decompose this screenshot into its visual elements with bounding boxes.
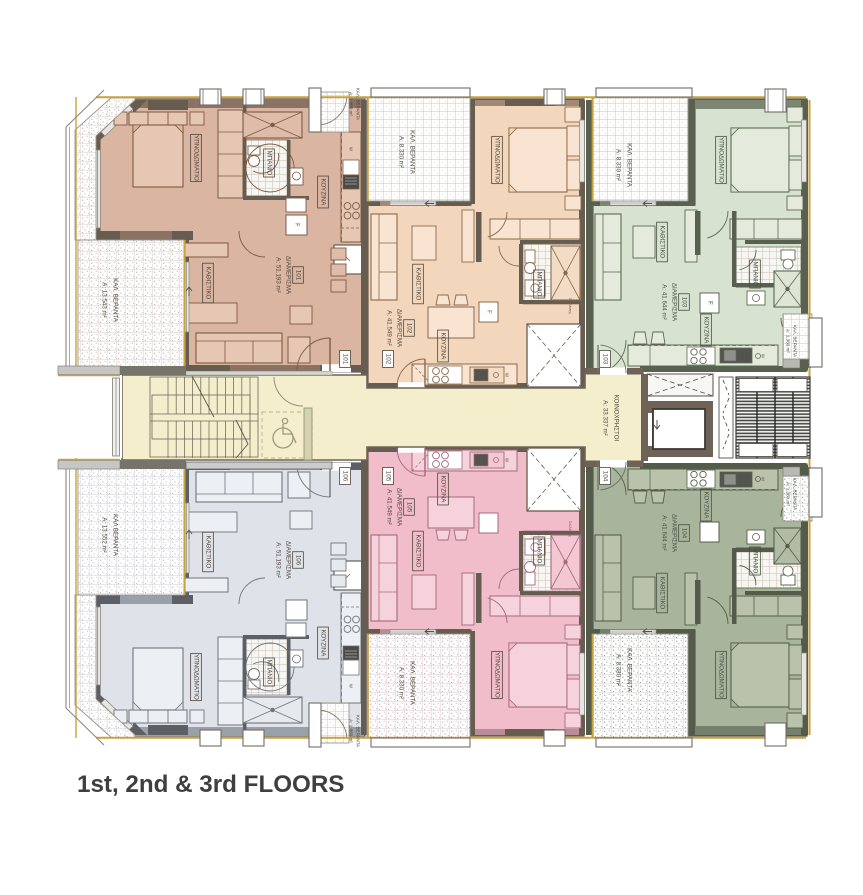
svg-text:ΥΠΝΟΔΩΜΑΤΙΟ: ΥΠΝΟΔΩΜΑΤΙΟ [718,652,725,698]
svg-text:101: 101 [342,354,349,365]
svg-text:ΚΑΘΙΣΤΙΚΟ: ΚΑΘΙΣΤΙΚΟ [659,577,666,610]
svg-text:Α: 51.193 m²: Α: 51.193 m² [275,542,282,577]
svg-text:W: W [349,684,354,688]
svg-text:ΚΟΥΖΙΝΑ: ΚΟΥΖΙΝΑ [440,333,447,361]
svg-text:Α: 1.060 m²: Α: 1.060 m² [349,719,354,743]
svg-text:ΚΑΛ ΒΕΡΑΝΤΑ: ΚΑΛ ΒΕΡΑΝΤΑ [112,514,119,557]
svg-text:ΚΑΛ. ΒΕΡΑΝΤΑ: ΚΑΛ. ΒΕΡΑΝΤΑ [112,278,119,323]
svg-text:Α: 13.552 m²: Α: 13.552 m² [101,517,108,552]
svg-text:Α: 51.193 m²: Α: 51.193 m² [275,257,282,292]
svg-text:106: 106 [342,471,349,482]
svg-text:ΚΑΛ. ΒΕΡΑΝΤΑ: ΚΑΛ. ΒΕΡΑΝΤΑ [793,478,798,511]
svg-text:ΚΑΘΙΣΤΙΚΟ: ΚΑΘΙΣΤΙΚΟ [205,536,212,569]
svg-text:Α: 8.330 m²: Α: 8.330 m² [615,149,622,181]
svg-text:Α: 1.360 m²: Α: 1.360 m² [786,482,791,506]
svg-text:ΔΙΑΜΕΡΙΣΜΑ: ΔΙΑΜΕΡΙΣΜΑ [396,309,403,348]
svg-text:Α: 41.644 m²: Α: 41.644 m² [661,515,668,550]
svg-text:ΜΠΑΝΙΟ: ΜΠΑΝΙΟ [752,549,759,574]
svg-text:ΔΙΑΜΕΡΙΣΜΑ: ΔΙΑΜΕΡΙΣΜΑ [671,283,678,322]
svg-text:W: W [761,477,766,481]
svg-text:ΚΑΛ. ΒΕΡΑΝΤΑ: ΚΑΛ. ΒΕΡΑΝΤΑ [793,325,798,358]
svg-text:104: 104 [681,528,688,539]
svg-text:ΚΑΘΙΣΤΙΚΟ: ΚΑΘΙΣΤΙΚΟ [415,535,422,568]
svg-text:Α: 8.330 m²: Α: 8.330 m² [398,667,405,699]
svg-text:W: W [349,147,354,151]
svg-text:ΚΑΘΙΣΤΙΚΟ: ΚΑΘΙΣΤΙΚΟ [205,267,212,300]
svg-text:1st, 2nd & 3rd FLOORS: 1st, 2nd & 3rd FLOORS [77,771,344,798]
svg-text:Α: 1.060 m²: Α: 1.060 m² [349,92,354,116]
svg-text:ΔΙΑΜΕΡΙΣΜΑ: ΔΙΑΜΕΡΙΣΜΑ [285,256,292,295]
svg-text:102: 102 [406,323,413,334]
svg-text:F: F [486,310,492,314]
svg-text:105: 105 [406,502,413,513]
svg-text:W: W [761,354,766,358]
svg-text:ΔΙΑΜΕΡΙΣΜΑ: ΔΙΑΜΕΡΙΣΜΑ [671,514,678,553]
svg-text:ΜΠΑΝΙΟ: ΜΠΑΝΙΟ [266,151,273,176]
svg-text:Α: 13.543 m²: Α: 13.543 m² [101,282,108,317]
svg-text:ΚΑΛ. ΒΕΡΑΝΤΑ: ΚΑΛ. ΒΕΡΑΝΤΑ [356,715,361,748]
svg-text:F: F [707,301,713,305]
svg-text:Α: 41.644 m²: Α: 41.644 m² [661,284,668,319]
svg-text:ΚΑΘΙΣΤΙΚΟ: ΚΑΘΙΣΤΙΚΟ [659,226,666,259]
svg-text:Α: 41.549 m²: Α: 41.549 m² [386,489,393,524]
svg-text:ΚΑΛ. ΒΕΡΑΝΤΑ: ΚΑΛ. ΒΕΡΑΝΤΑ [356,88,361,121]
svg-text:ΜΠΑΝΙΟ: ΜΠΑΝΙΟ [266,660,273,685]
svg-text:Α: 8.330 m²: Α: 8.330 m² [398,136,405,168]
svg-text:Α: 1.360 m²: Α: 1.360 m² [786,329,791,353]
svg-text:ΔΙΑΜΕΡΙΣΜΑ: ΔΙΑΜΕΡΙΣΜΑ [285,541,292,580]
svg-text:103: 103 [602,354,609,365]
svg-text:Συλλέκτης: Συλλέκτης [568,298,572,315]
svg-text:ΥΠΝΟΔΩΜΑΤΙΟ: ΥΠΝΟΔΩΜΑΤΙΟ [718,137,725,183]
svg-text:102: 102 [385,354,392,365]
svg-text:ΜΠΑΝΙΟ: ΜΠΑΝΙΟ [536,272,543,297]
svg-text:ΚΟΥΖΙΝΑ: ΚΟΥΖΙΝΑ [440,476,447,504]
svg-text:W: W [505,458,510,462]
svg-text:ΔΙΑΜΕΡΙΣΜΑ: ΔΙΑΜΕΡΙΣΜΑ [396,488,403,527]
svg-text:ΚΟΙΝΟΧΡΗΣΤΟΙ: ΚΟΙΝΟΧΡΗΣΤΟΙ [613,395,620,442]
svg-text:ΚΟΥΖΙΝΑ: ΚΟΥΖΙΝΑ [703,317,710,345]
svg-text:Συλλέκτης: Συλλέκτης [568,521,572,538]
svg-text:ΚΑΛ. ΒΕΡΑΝΤΑ: ΚΑΛ. ΒΕΡΑΝΤΑ [626,143,633,188]
svg-text:105: 105 [385,471,392,482]
svg-text:ΚΑΛ. ΒΕΡΑΝΤΑ: ΚΑΛ. ΒΕΡΑΝΤΑ [626,648,633,693]
svg-text:104: 104 [602,471,609,482]
svg-text:ΥΠΝΟΔΩΜΑΤΙΟ: ΥΠΝΟΔΩΜΑΤΙΟ [494,652,501,698]
svg-text:103: 103 [681,297,688,308]
svg-text:Α: 33.337 m²: Α: 33.337 m² [602,400,609,435]
svg-text:ΥΠΝΟΔΩΜΑΤΙΟ: ΥΠΝΟΔΩΜΑΤΙΟ [193,135,200,181]
svg-text:ΚΑΘΙΣΤΙΚΟ: ΚΑΘΙΣΤΙΚΟ [415,268,422,301]
svg-text:101: 101 [295,270,302,281]
svg-text:F: F [294,223,300,227]
svg-text:ΥΠΝΟΔΩΜΑΤΙΟ: ΥΠΝΟΔΩΜΑΤΙΟ [494,137,501,183]
svg-text:106: 106 [295,555,302,566]
svg-text:ΚΑΛ. ΒΕΡΑΝΤΑ: ΚΑΛ. ΒΕΡΑΝΤΑ [409,130,416,175]
svg-text:ΚΟΥΖΙΝΑ: ΚΟΥΖΙΝΑ [320,179,327,207]
svg-text:ΚΟΥΖΙΝΑ: ΚΟΥΖΙΝΑ [320,630,327,658]
svg-text:ΜΠΑΝΙΟ: ΜΠΑΝΙΟ [536,539,543,564]
svg-text:ΚΑΛ. ΒΕΡΑΝΤΑ: ΚΑΛ. ΒΕΡΑΝΤΑ [409,661,416,706]
svg-text:Α: 8.380 m²: Α: 8.380 m² [615,654,622,686]
svg-text:ΚΟΥΖΙΝΑ: ΚΟΥΖΙΝΑ [703,492,710,520]
svg-text:ΜΠΑΝΙΟ: ΜΠΑΝΙΟ [752,262,759,287]
svg-text:Α: 41.549 m²: Α: 41.549 m² [386,310,393,345]
svg-text:ΥΠΝΟΔΩΜΑΤΙΟ: ΥΠΝΟΔΩΜΑΤΙΟ [193,654,200,700]
svg-text:W: W [505,373,510,377]
